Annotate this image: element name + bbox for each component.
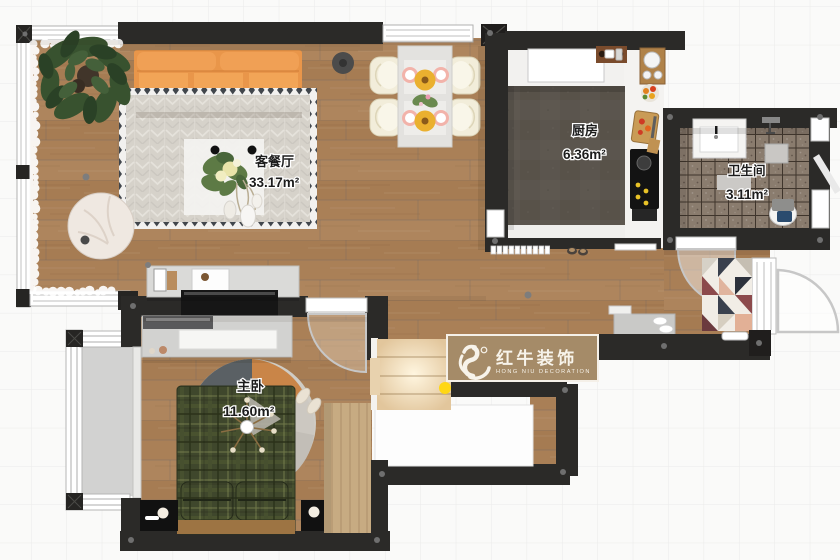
svg-text:11.60m²: 11.60m² [223, 403, 275, 419]
svg-text:厨房: 厨房 [572, 123, 598, 138]
svg-text:6.36m²: 6.36m² [563, 147, 606, 162]
svg-text:HONG NIU DECORATION: HONG NIU DECORATION [496, 369, 591, 375]
svg-text:客餐厅: 客餐厅 [255, 154, 294, 169]
svg-text:卫生间: 卫生间 [728, 163, 766, 178]
svg-text:主卧: 主卧 [237, 378, 264, 394]
svg-text:33.17m²: 33.17m² [249, 175, 300, 190]
svg-text:红牛装饰: 红牛装饰 [496, 348, 578, 368]
svg-text:3.11m²: 3.11m² [726, 187, 769, 202]
